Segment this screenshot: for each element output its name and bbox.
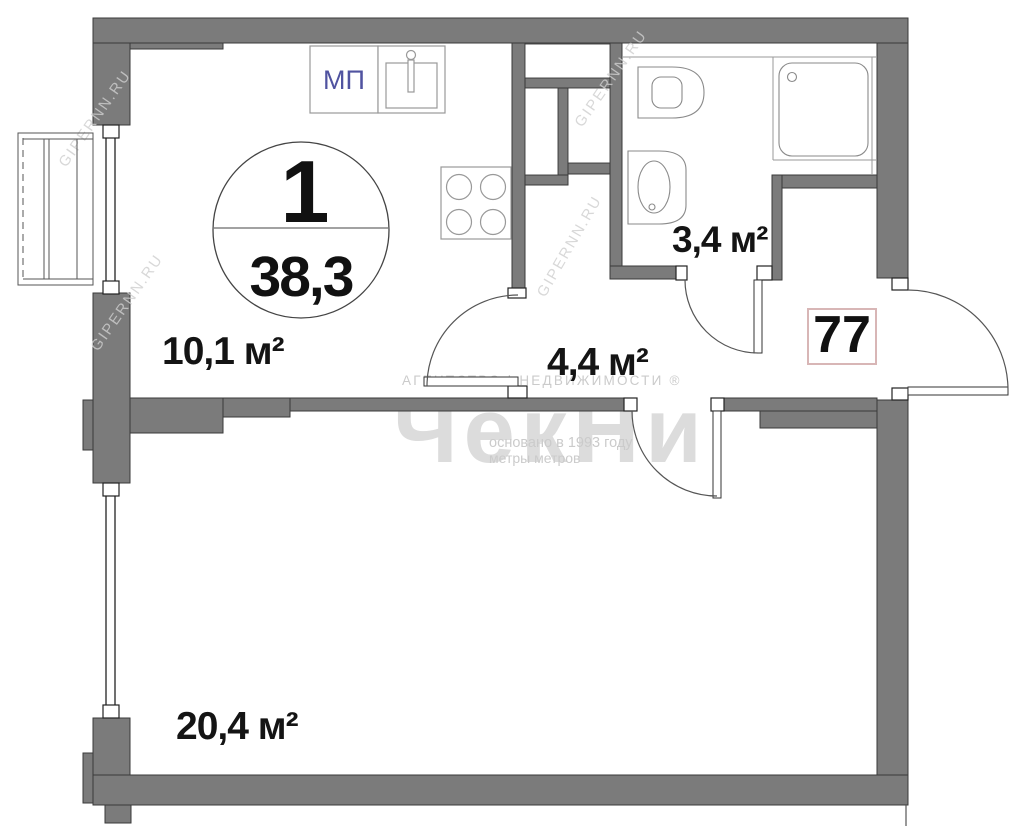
bathroom-sink-icon — [628, 151, 686, 224]
wall-entry-nook-vertical — [772, 175, 782, 280]
duct-shaft-left — [525, 88, 558, 175]
door-jamb — [508, 288, 526, 298]
wall-pilaster-left-mid — [83, 400, 93, 450]
door-leaf — [754, 280, 762, 353]
hallway-area-label: 4,4 м² — [547, 341, 649, 384]
kitchen-sink-icon — [378, 46, 445, 113]
floor-plan-page: АГЕНТСТВО | НЕДВИЖИМОСТИ ® ЧекНи основан… — [0, 0, 1024, 827]
door-leaf — [424, 377, 518, 386]
wall-right-lower — [877, 400, 908, 775]
wall-living-block-left — [130, 398, 223, 433]
door-jamb — [711, 398, 724, 411]
window-cap — [103, 705, 119, 718]
shower-icon — [773, 57, 877, 160]
founded-watermark: основано в 1993 году — [489, 435, 633, 451]
watermark-layer: АГЕНТСТВО | НЕДВИЖИМОСТИ ® ЧекНи основан… — [393, 373, 708, 482]
apartment-number-badge: 77 — [808, 306, 876, 364]
door-jamb — [892, 388, 908, 400]
wall-entry-nook-top — [782, 175, 877, 188]
door-jamb — [508, 386, 527, 398]
door-jamb — [676, 266, 687, 280]
niche — [525, 44, 610, 78]
wall-shaft-left-bottom — [525, 175, 568, 185]
wall-hall-living-thick — [760, 411, 877, 428]
door-jamb — [892, 278, 908, 290]
wall-living-step — [223, 398, 290, 417]
toilet-icon — [638, 67, 704, 118]
stove-icon — [441, 167, 511, 239]
unit-info-circle: 1 38,3 — [213, 142, 389, 318]
wall-kitchen-living — [290, 398, 633, 411]
wall-hall-living — [718, 398, 877, 411]
bathroom-area-label: 3,4 м² — [672, 219, 768, 260]
wall-top-step — [130, 43, 223, 49]
window-mark-label: МП — [323, 65, 365, 95]
door-leaf — [908, 387, 1008, 395]
window-cap — [103, 281, 119, 294]
wall-right-upper — [877, 43, 908, 278]
wall-top — [93, 18, 908, 43]
floor-plan: АГЕНТСТВО | НЕДВИЖИМОСТИ ® ЧекНи основан… — [0, 0, 1024, 827]
wall-bathroom-south — [610, 266, 685, 279]
wall-bottom — [93, 775, 908, 805]
window-cap — [103, 125, 119, 138]
brand-watermark: ЧекНи — [393, 380, 708, 482]
room-count-label: 1 — [281, 142, 330, 241]
door-leaf — [713, 411, 721, 498]
slogan-watermark: метры метров — [489, 450, 580, 466]
total-area-label: 38,3 — [250, 245, 353, 309]
wall-stub-bottom-left — [105, 805, 131, 823]
wall-kitchen-hall — [512, 43, 525, 298]
wall-left-lower — [93, 718, 130, 775]
wall-shaft-divider — [558, 88, 568, 185]
window-cap — [103, 483, 119, 496]
door-jamb — [624, 398, 637, 411]
door-jamb — [757, 266, 772, 280]
wall-shaft-right-bottom — [568, 163, 610, 174]
wall-pilaster-left-bottom — [83, 753, 93, 803]
living-room-area-label: 20,4 м² — [176, 705, 299, 748]
kitchen-area-label: 10,1 м² — [162, 330, 285, 373]
apartment-number-label: 77 — [813, 306, 871, 364]
